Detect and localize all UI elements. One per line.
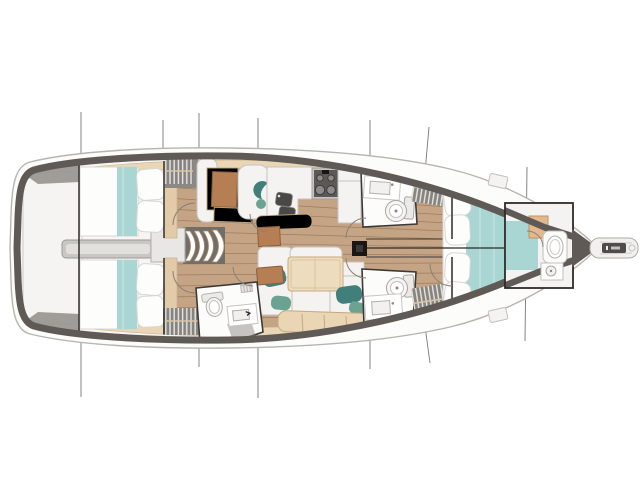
galley-sink-1 bbox=[275, 192, 293, 207]
burner bbox=[327, 186, 336, 195]
bowsprit bbox=[590, 238, 638, 258]
toilet bbox=[543, 231, 567, 263]
stove bbox=[312, 168, 340, 199]
engine-compartment bbox=[62, 240, 156, 258]
pillow bbox=[136, 263, 165, 296]
companionway-steps bbox=[151, 227, 225, 264]
aft-head bbox=[196, 282, 263, 343]
salon-ottoman bbox=[256, 266, 283, 285]
pillow bbox=[136, 200, 165, 232]
washbasin bbox=[541, 263, 563, 280]
pillow bbox=[444, 214, 471, 245]
aqua-bed-runner bbox=[117, 260, 137, 329]
galley-bar-end bbox=[258, 226, 281, 246]
chart-table bbox=[211, 172, 237, 208]
burner bbox=[317, 175, 323, 181]
burner bbox=[315, 185, 324, 194]
floor-plan-svg bbox=[0, 0, 640, 479]
pillow bbox=[444, 252, 471, 283]
burner bbox=[328, 175, 334, 181]
fridge-cabinet bbox=[338, 167, 361, 223]
forward-head bbox=[505, 203, 573, 289]
nav-seat-cushion-small bbox=[256, 199, 266, 209]
wardrobe-locker-aft-top bbox=[165, 158, 198, 188]
nav-seat bbox=[238, 165, 269, 219]
pillow bbox=[136, 295, 165, 327]
yacht-floor-plan bbox=[0, 0, 640, 479]
nav-station bbox=[197, 158, 269, 223]
aqua-bed-runner bbox=[117, 167, 137, 236]
pillow bbox=[136, 168, 165, 201]
mast bbox=[352, 241, 367, 256]
washbasin bbox=[227, 303, 258, 326]
